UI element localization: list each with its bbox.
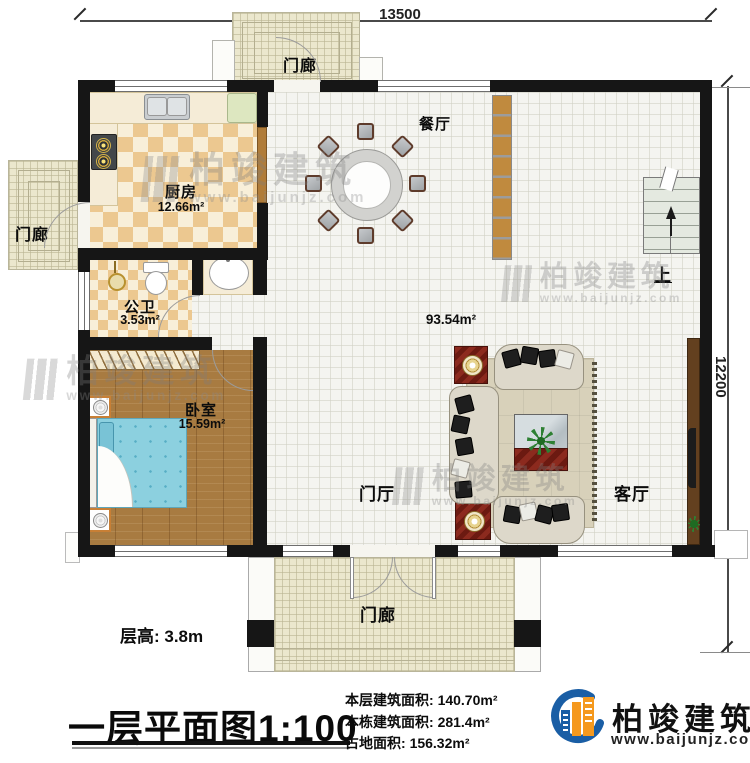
stat-row: 本层建筑面积: 140.70m² xyxy=(345,690,498,712)
plant xyxy=(527,427,555,455)
nightstand-lamp xyxy=(93,513,108,528)
dining-chair xyxy=(357,123,374,140)
porch-bottom-frame xyxy=(248,557,275,672)
wall-segment xyxy=(227,80,274,92)
porch-bottom-frame xyxy=(514,557,541,672)
watermark: 柏竣建筑 www.baijunjz.com xyxy=(143,152,366,205)
sofa-pillow xyxy=(455,437,475,457)
title-underline xyxy=(72,741,350,745)
window xyxy=(283,545,333,557)
living-label: 客厅 xyxy=(597,480,667,505)
table-lamp xyxy=(464,511,485,532)
watermark: 柏竣建筑 www.baijunjz.com xyxy=(503,262,682,304)
tv xyxy=(688,428,696,488)
cutting-board xyxy=(227,93,257,123)
dimension-top-label: 13500 xyxy=(368,6,432,23)
stove-burner xyxy=(96,138,111,153)
stairs-arrow-shaft xyxy=(670,218,672,236)
dining-label: 餐厅 xyxy=(400,113,470,134)
stat-row: 占地面积: 156.32m² xyxy=(345,733,498,755)
stove-burner xyxy=(96,154,111,169)
window xyxy=(558,545,672,557)
window xyxy=(378,80,490,92)
watermark-site: www.baijunjz.com xyxy=(432,495,578,507)
wall-segment xyxy=(78,545,115,557)
wall-segment xyxy=(333,545,350,557)
watermark: 柏竣建筑 www.baijunjz.com xyxy=(25,355,226,403)
door-leaf xyxy=(432,557,436,599)
wall-segment xyxy=(700,80,712,557)
extension-line xyxy=(712,87,750,88)
kitchen-sink-basin xyxy=(147,97,167,116)
title-underline-thin xyxy=(72,747,350,749)
porch-pillar xyxy=(247,620,274,647)
area-stats: 本层建筑面积: 140.70m² 本栋建筑面积: 281.4m² 占地面积: 1… xyxy=(345,690,498,755)
dimension-tick xyxy=(74,8,87,21)
door-leaf xyxy=(350,557,354,599)
floor-plan: 13500 12200 门廊 门廊 门廊 xyxy=(0,0,750,763)
wall-segment xyxy=(253,250,267,295)
shower-drain xyxy=(108,273,126,291)
porch-bottom-label: 门廊 xyxy=(352,601,404,626)
watermark-name: 柏竣建筑 xyxy=(540,262,682,291)
porch-step-line xyxy=(274,648,515,649)
watermark-name: 柏竣建筑 xyxy=(432,464,578,494)
window xyxy=(115,80,227,92)
stat-row: 本栋建筑面积: 281.4m² xyxy=(345,712,498,734)
wall-segment xyxy=(320,80,378,92)
watermark-site: www.baijunjz.com xyxy=(540,292,682,304)
porch-pillar xyxy=(514,620,541,647)
dining-chair xyxy=(409,175,426,192)
porch-step-pad xyxy=(212,40,235,85)
floor-height-note: 层高: 3.8m xyxy=(120,622,203,647)
watermark-logo-icon xyxy=(23,358,62,399)
sofa-pillow xyxy=(520,346,540,366)
table-lamp xyxy=(462,355,483,376)
hall-area-label: 93.54m² xyxy=(415,312,487,327)
bedroom-area: 15.59m² xyxy=(166,417,238,431)
watermark-site: www.baijunjz.com xyxy=(189,190,366,205)
wall-segment xyxy=(78,80,90,202)
wall-segment xyxy=(253,337,267,557)
watermark-name: 柏竣建筑 xyxy=(66,355,226,387)
watermark-logo-icon xyxy=(501,265,535,302)
shower-line xyxy=(114,261,116,273)
bathroom-area: 3.53m² xyxy=(105,313,175,327)
wood-screen xyxy=(492,95,512,260)
extension-line xyxy=(700,652,750,653)
watermark-site: www.baijunjz.com xyxy=(66,389,226,403)
door-threshold xyxy=(350,545,435,557)
window xyxy=(458,545,500,557)
brand-logo-svg xyxy=(544,688,606,750)
watermark: 柏竣建筑 www.baijunjz.com xyxy=(394,464,577,507)
plant xyxy=(688,516,700,532)
wall-segment xyxy=(192,260,203,295)
wall-segment xyxy=(78,248,268,260)
wall-segment xyxy=(78,337,212,350)
watermark-logo-icon xyxy=(392,467,427,505)
dimension-right-label: 12200 xyxy=(712,356,729,398)
wall-segment xyxy=(490,80,712,92)
brand-logo-icon xyxy=(544,688,606,750)
window xyxy=(115,545,227,557)
sofa-pillow xyxy=(450,414,470,434)
watermark-logo-icon xyxy=(141,156,184,202)
kitchen-sink-basin xyxy=(167,97,187,116)
wall-segment xyxy=(500,545,558,557)
brand-site: www.baijunjz.com xyxy=(611,731,750,748)
wall-segment xyxy=(257,92,268,127)
toilet-bowl xyxy=(145,271,167,295)
dining-chair xyxy=(357,227,374,244)
porch-step-line xyxy=(274,660,515,661)
window xyxy=(78,272,90,330)
dimension-tick xyxy=(705,8,718,21)
exterior-pad xyxy=(714,530,748,559)
watermark-name: 柏竣建筑 xyxy=(189,152,366,188)
wall-segment xyxy=(435,545,458,557)
